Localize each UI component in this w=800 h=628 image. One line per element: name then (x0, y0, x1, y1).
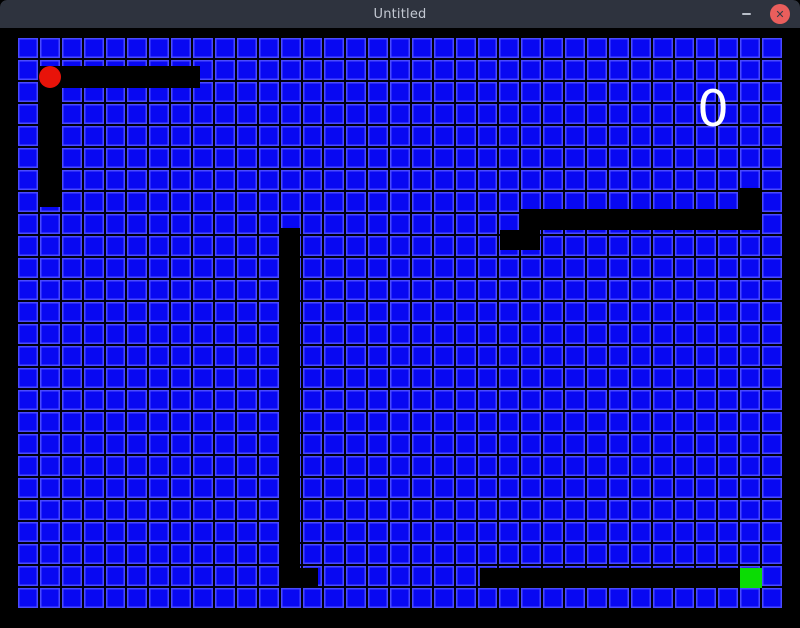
grid-cell (193, 302, 213, 322)
grid-cell (18, 126, 38, 146)
grid-cell (675, 324, 695, 344)
grid-cell (434, 390, 454, 410)
grid-cell (346, 346, 366, 366)
grid-cell (521, 302, 541, 322)
grid-cell (281, 170, 301, 190)
grid-cell (718, 60, 738, 80)
grid-cell (193, 214, 213, 234)
grid-cell (587, 434, 607, 454)
grid-cell (675, 434, 695, 454)
grid-cell (456, 588, 476, 608)
grid-cell (193, 434, 213, 454)
grid-cell (237, 126, 257, 146)
grid-cell (390, 478, 410, 498)
grid-cell (171, 588, 191, 608)
grid-cell (324, 60, 344, 80)
grid-cell (40, 522, 60, 542)
grid-cell (631, 478, 651, 498)
grid-cell (127, 236, 147, 256)
grid-cell (259, 38, 279, 58)
grid-cell (40, 434, 60, 454)
grid-cell (565, 390, 585, 410)
grid-cell (718, 478, 738, 498)
grid-cell (565, 500, 585, 520)
grid-cell (587, 302, 607, 322)
grid-cell (18, 544, 38, 564)
grid-cell (281, 588, 301, 608)
grid-cell (631, 302, 651, 322)
grid-cell (390, 522, 410, 542)
grid-cell (718, 544, 738, 564)
grid-cell (171, 456, 191, 476)
grid-cell (434, 412, 454, 432)
grid-cell (587, 390, 607, 410)
grid-cell (740, 170, 760, 190)
grid-cell (346, 258, 366, 278)
grid-cell (303, 456, 323, 476)
grid-cell (762, 60, 782, 80)
grid-cell (62, 324, 82, 344)
grid-cell (193, 170, 213, 190)
grid-cell (368, 38, 388, 58)
grid-cell (478, 346, 498, 366)
grid-cell (193, 38, 213, 58)
grid-cell (193, 456, 213, 476)
grid-cell (149, 522, 169, 542)
apple (39, 66, 61, 88)
grid-cell (565, 412, 585, 432)
close-button[interactable]: ✕ (770, 4, 790, 24)
grid-cell (324, 214, 344, 234)
grid-cell (237, 588, 257, 608)
grid-cell (237, 346, 257, 366)
grid-cell (281, 60, 301, 80)
grid-cell (40, 280, 60, 300)
grid-cell (478, 544, 498, 564)
grid-cell (587, 60, 607, 80)
grid-cell (346, 368, 366, 388)
grid-cell (171, 258, 191, 278)
grid-cell (740, 60, 760, 80)
top-left-horizontal-wall (40, 66, 200, 88)
grid-cell (412, 258, 432, 278)
grid-cell (499, 412, 519, 432)
grid-cell (675, 170, 695, 190)
grid-cell (631, 544, 651, 564)
grid-cell (412, 588, 432, 608)
grid-cell (521, 588, 541, 608)
grid-cell (412, 434, 432, 454)
grid-cell (653, 522, 673, 542)
grid-cell (259, 544, 279, 564)
grid-cell (84, 368, 104, 388)
grid-cell (237, 368, 257, 388)
grid-cell (303, 126, 323, 146)
grid-cell (653, 368, 673, 388)
grid-cell (259, 412, 279, 432)
grid-cell (565, 544, 585, 564)
grid-cell (478, 104, 498, 124)
grid-cell (127, 522, 147, 542)
grid-cell (434, 456, 454, 476)
grid-cell (106, 302, 126, 322)
grid-cell (149, 346, 169, 366)
grid-cell (40, 368, 60, 388)
grid-cell (587, 170, 607, 190)
grid-cell (127, 258, 147, 278)
grid-cell (259, 60, 279, 80)
grid-cell (149, 434, 169, 454)
grid-cell (84, 500, 104, 520)
grid-cell (587, 148, 607, 168)
grid-cell (18, 500, 38, 520)
grid-cell (565, 346, 585, 366)
grid-cell (40, 346, 60, 366)
grid-cell (62, 478, 82, 498)
grid-cell (18, 82, 38, 102)
grid-cell (193, 478, 213, 498)
grid-cell (521, 126, 541, 146)
grid-cell (478, 500, 498, 520)
grid-cell (762, 390, 782, 410)
grid-cell (149, 236, 169, 256)
grid-cell (609, 324, 629, 344)
grid-cell (478, 522, 498, 542)
grid-cell (40, 456, 60, 476)
grid-cell (565, 82, 585, 102)
grid-cell (390, 258, 410, 278)
grid-cell (259, 104, 279, 124)
grid-cell (456, 280, 476, 300)
grid-cell (171, 126, 191, 146)
grid-cell (106, 500, 126, 520)
grid-cell (106, 126, 126, 146)
grid-cell (18, 522, 38, 542)
grid-cell (653, 60, 673, 80)
grid-cell (171, 390, 191, 410)
grid-cell (62, 170, 82, 190)
grid-cell (740, 82, 760, 102)
grid-background (18, 38, 782, 608)
grid-cell (62, 148, 82, 168)
grid-cell (171, 324, 191, 344)
grid-cell (696, 456, 716, 476)
grid-cell (543, 368, 563, 388)
grid-cell (346, 302, 366, 322)
grid-cell (543, 170, 563, 190)
grid-cell (478, 324, 498, 344)
grid-cell (587, 104, 607, 124)
grid-cell (762, 368, 782, 388)
grid-cell (193, 258, 213, 278)
grid-cell (565, 38, 585, 58)
grid-cell (478, 258, 498, 278)
grid-cell (106, 390, 126, 410)
grid-cell (193, 566, 213, 586)
grid-cell (609, 368, 629, 388)
grid-cell (499, 126, 519, 146)
grid-cell (215, 390, 235, 410)
grid-cell (171, 544, 191, 564)
grid-cell (215, 566, 235, 586)
grid-cell (740, 126, 760, 146)
grid-cell (521, 412, 541, 432)
grid-cell (696, 346, 716, 366)
grid-cell (303, 104, 323, 124)
grid-cell (456, 522, 476, 542)
grid-cell (237, 60, 257, 80)
grid-cell (696, 38, 716, 58)
right-wall-top-cell (740, 188, 762, 210)
grid-cell (237, 148, 257, 168)
grid-cell (718, 346, 738, 366)
grid-cell (18, 346, 38, 366)
grid-cell (696, 522, 716, 542)
grid-cell (346, 126, 366, 146)
grid-cell (587, 236, 607, 256)
grid-cell (390, 170, 410, 190)
grid-cell (740, 478, 760, 498)
grid-cell (412, 522, 432, 542)
grid-cell (303, 478, 323, 498)
grid-cell (215, 412, 235, 432)
grid-cell (84, 258, 104, 278)
grid-cell (587, 368, 607, 388)
grid-cell (521, 478, 541, 498)
grid-cell (62, 104, 82, 124)
grid-cell (412, 544, 432, 564)
grid-cell (390, 280, 410, 300)
grid-cell (368, 346, 388, 366)
grid-cell (193, 390, 213, 410)
grid-cell (106, 324, 126, 344)
grid-cell (675, 456, 695, 476)
grid-cell (368, 588, 388, 608)
grid-cell (521, 544, 541, 564)
grid-cell (521, 368, 541, 388)
grid-cell (696, 500, 716, 520)
grid-cell (368, 412, 388, 432)
grid-cell (193, 148, 213, 168)
grid-cell (696, 412, 716, 432)
grid-cell (740, 236, 760, 256)
minimize-button[interactable] (737, 5, 755, 23)
grid-cell (675, 522, 695, 542)
grid-cell (762, 544, 782, 564)
grid-cell (215, 258, 235, 278)
grid-cell (631, 280, 651, 300)
grid-cell (149, 544, 169, 564)
grid-cell (631, 148, 651, 168)
grid-cell (215, 104, 235, 124)
grid-cell (412, 126, 432, 146)
grid-cell (149, 324, 169, 344)
grid-cell (303, 214, 323, 234)
grid-cell (18, 60, 38, 80)
grid-cell (259, 148, 279, 168)
grid-cell (303, 588, 323, 608)
grid-cell (456, 148, 476, 168)
grid-cell (412, 38, 432, 58)
grid-cell (478, 38, 498, 58)
grid-cell (346, 412, 366, 432)
grid-cell (390, 148, 410, 168)
grid-cell (18, 368, 38, 388)
grid-cell (18, 258, 38, 278)
grid-cell (215, 324, 235, 344)
grid-cell (434, 324, 454, 344)
grid-cell (281, 126, 301, 146)
grid-cell (346, 38, 366, 58)
titlebar[interactable]: Untitled ✕ (0, 0, 800, 28)
grid-cell (62, 302, 82, 322)
grid-cell (390, 214, 410, 234)
grid-cell (478, 456, 498, 476)
grid-cell (18, 214, 38, 234)
grid-cell (368, 60, 388, 80)
grid-cell (434, 192, 454, 212)
grid-cell (346, 324, 366, 344)
grid-cell (237, 500, 257, 520)
grid-cell (303, 544, 323, 564)
grid-cell (259, 588, 279, 608)
grid-cell (237, 236, 257, 256)
grid-cell (762, 500, 782, 520)
grid-cell (368, 544, 388, 564)
grid-cell (434, 434, 454, 454)
grid-cell (259, 566, 279, 586)
grid-cell (762, 522, 782, 542)
grid-cell (127, 566, 147, 586)
grid-cell (609, 82, 629, 102)
grid-cell (149, 214, 169, 234)
grid-cell (303, 302, 323, 322)
grid-cell (499, 368, 519, 388)
grid-cell (106, 214, 126, 234)
grid-cell (106, 456, 126, 476)
grid-cell (543, 522, 563, 542)
grid-cell (653, 456, 673, 476)
grid-cell (106, 236, 126, 256)
grid-cell (149, 456, 169, 476)
grid-cell (609, 390, 629, 410)
grid-cell (565, 60, 585, 80)
right-wall-step (500, 230, 540, 250)
grid-cell (718, 38, 738, 58)
grid-cell (762, 192, 782, 212)
grid-cell (675, 346, 695, 366)
grid-cell (215, 170, 235, 190)
grid-cell (127, 148, 147, 168)
grid-cell (434, 104, 454, 124)
grid-cell (281, 104, 301, 124)
grid-cell (149, 412, 169, 432)
grid-cell (587, 412, 607, 432)
grid-cell (368, 170, 388, 190)
grid-cell (696, 588, 716, 608)
grid-cell (215, 368, 235, 388)
grid-cell (368, 258, 388, 278)
grid-cell (303, 148, 323, 168)
grid-cell (368, 324, 388, 344)
grid-cell (281, 38, 301, 58)
grid-cell (412, 148, 432, 168)
grid-cell (84, 346, 104, 366)
grid-cell (106, 258, 126, 278)
grid-cell (653, 258, 673, 278)
grid-cell (40, 500, 60, 520)
grid-cell (346, 104, 366, 124)
grid-cell (127, 500, 147, 520)
grid-cell (62, 214, 82, 234)
grid-cell (609, 412, 629, 432)
grid-cell (587, 522, 607, 542)
grid-cell (324, 456, 344, 476)
grid-cell (653, 302, 673, 322)
grid-cell (84, 192, 104, 212)
grid-cell (653, 500, 673, 520)
grid-cell (499, 588, 519, 608)
grid-cell (368, 82, 388, 102)
grid-cell (675, 38, 695, 58)
grid-cell (631, 368, 651, 388)
grid-cell (346, 60, 366, 80)
grid-cell (740, 280, 760, 300)
grid-cell (609, 522, 629, 542)
grid-cell (434, 38, 454, 58)
grid-cell (237, 38, 257, 58)
grid-cell (127, 324, 147, 344)
game-board[interactable]: 0 (18, 38, 782, 608)
grid-cell (40, 566, 60, 586)
grid-cell (149, 588, 169, 608)
grid-cell (149, 258, 169, 278)
grid-cell (740, 148, 760, 168)
grid-cell (40, 302, 60, 322)
grid-cell (456, 456, 476, 476)
grid-cell (718, 522, 738, 542)
grid-cell (149, 192, 169, 212)
grid-cell (740, 456, 760, 476)
grid-cell (434, 214, 454, 234)
grid-cell (434, 126, 454, 146)
grid-cell (149, 500, 169, 520)
grid-cell (412, 456, 432, 476)
grid-cell (521, 148, 541, 168)
grid-cell (478, 126, 498, 146)
grid-cell (303, 434, 323, 454)
grid-cell (521, 456, 541, 476)
grid-cell (18, 434, 38, 454)
grid-cell (324, 280, 344, 300)
grid-cell (346, 170, 366, 190)
grid-cell (303, 522, 323, 542)
grid-cell (434, 170, 454, 190)
grid-cell (303, 38, 323, 58)
grid-cell (40, 588, 60, 608)
grid-cell (368, 192, 388, 212)
grid-cell (653, 38, 673, 58)
grid-cell (675, 368, 695, 388)
grid-cell (499, 82, 519, 102)
grid-cell (740, 544, 760, 564)
grid-cell (324, 588, 344, 608)
grid-cell (40, 214, 60, 234)
grid-cell (171, 500, 191, 520)
grid-cell (740, 324, 760, 344)
grid-cell (346, 236, 366, 256)
grid-cell (193, 126, 213, 146)
